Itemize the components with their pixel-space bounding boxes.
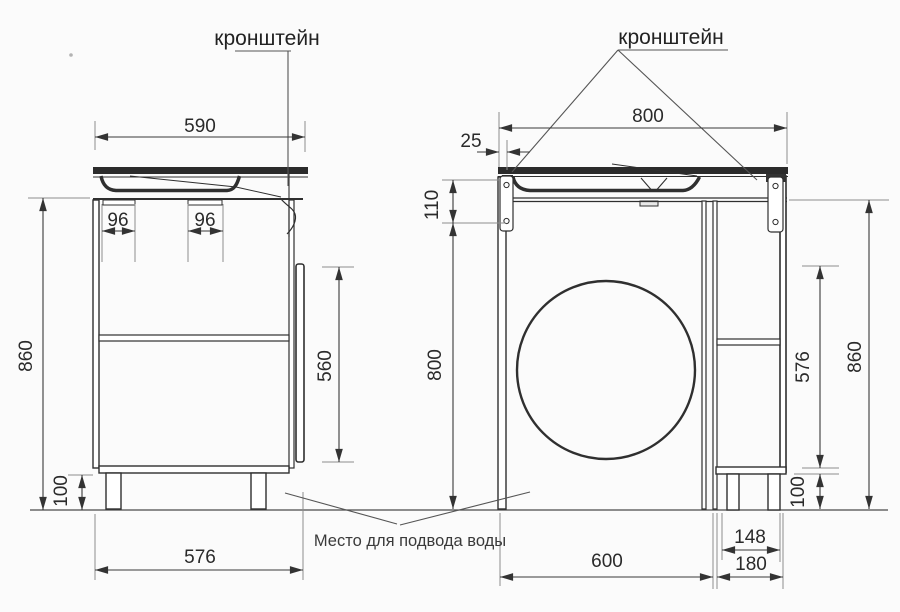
dim-800-niche: 800 <box>425 349 446 381</box>
right-cabinet-dimensions: 800 25 110 800 860 576 100 600 <box>422 106 889 589</box>
left-rail-tab-2 <box>188 200 222 205</box>
side-leg-left <box>727 474 739 510</box>
left-leg-back <box>251 473 266 509</box>
dim-100-right: 100 <box>788 476 809 508</box>
water-leader-right <box>400 492 530 525</box>
left-sink-back-edge <box>130 176 281 197</box>
dim-576-right: 576 <box>793 351 814 383</box>
dim-800-top: 800 <box>632 106 664 127</box>
dim-860-left: 860 <box>16 340 37 372</box>
dim-96-left: 96 <box>107 210 128 231</box>
left-cabinet-right-wall <box>289 200 294 468</box>
dim-560: 560 <box>315 350 336 382</box>
left-shelf <box>99 335 289 341</box>
right-drain-funnel-r <box>657 178 667 190</box>
dim-96-right: 96 <box>194 210 215 231</box>
dim-110: 110 <box>422 190 443 220</box>
side-section-bottom <box>716 467 786 474</box>
bracket-label-left: кронштейн <box>214 27 319 50</box>
right-bracket-leader-left <box>512 50 618 172</box>
water-supply-callout: Место для подвода воды <box>285 492 530 550</box>
side-leg-right <box>768 474 780 510</box>
dim-576-bottom: 576 <box>184 547 216 568</box>
dim-100-left: 100 <box>51 475 72 507</box>
niche-right-wall <box>702 201 706 509</box>
dim-25: 25 <box>460 131 481 152</box>
left-cabinet-left-wall <box>93 200 99 468</box>
scan-artifact <box>69 53 73 57</box>
dim-590: 590 <box>184 116 216 137</box>
technical-drawing-page: кронштейн 590 96 96 860 560 100 <box>0 0 900 612</box>
water-leader-left <box>285 493 397 524</box>
dim-600: 600 <box>591 551 623 572</box>
right-bracket-plate <box>768 177 783 232</box>
side-section-left-wall <box>713 201 717 509</box>
right-bracket-callout: кронштейн <box>512 26 757 180</box>
left-bracket-callout: кронштейн <box>214 27 319 186</box>
dim-180: 180 <box>735 554 767 575</box>
right-sink-bowl <box>513 177 700 191</box>
dim-860-right: 860 <box>845 341 866 373</box>
water-supply-note: Место для подвода воды <box>314 532 506 550</box>
right-drain-funnel-l <box>641 178 651 190</box>
bracket-label-right: кронштейн <box>618 26 723 49</box>
left-bottom-panel <box>99 466 289 473</box>
cabinet-dimension-drawing: кронштейн 590 96 96 860 560 100 <box>0 0 900 612</box>
left-leg-front <box>106 473 121 509</box>
right-cabinet-drawing <box>498 164 788 510</box>
left-countertop <box>93 167 308 174</box>
left-sink-bowl <box>101 176 240 191</box>
left-rail-tab-1 <box>103 200 135 205</box>
washing-machine-door <box>517 281 695 459</box>
left-door-panel <box>296 264 304 462</box>
dim-148: 148 <box>734 527 766 548</box>
side-section-shelf <box>717 339 780 345</box>
